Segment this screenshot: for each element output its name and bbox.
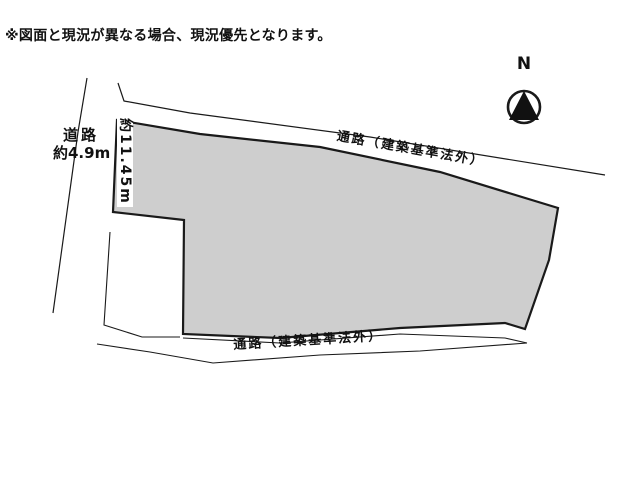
west-road-line (53, 78, 87, 313)
parcel-shape (113, 120, 558, 338)
west-road-width-label: 約4.9m (53, 145, 110, 162)
site-plan-drawing: ※図面と現況が異なる場合、現況優先となります。 N 道路 約4.9m 約11.4… (0, 0, 640, 477)
west-road-name-label: 道路 (63, 127, 99, 144)
site-plan-svg (0, 0, 640, 477)
disclaimer-note: ※図面と現況が異なる場合、現況優先となります。 (5, 28, 332, 44)
north-label: N (514, 55, 534, 75)
west-boundary-length-label: 約11.45m (117, 116, 133, 207)
notch-boundary-line (104, 232, 180, 337)
north-compass-icon (508, 91, 540, 123)
